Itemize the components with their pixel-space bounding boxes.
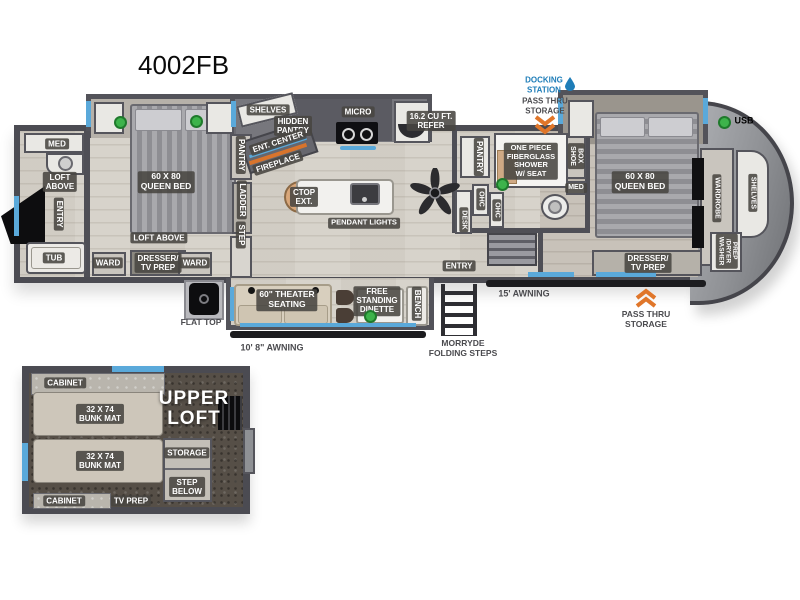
label-ladder: LADDER <box>237 180 247 219</box>
window-accent <box>528 272 574 277</box>
label-shower: ONE PIECE FIBERGLASS SHOWER W/ SEAT <box>504 143 558 180</box>
label-med-rear: MED <box>45 138 69 149</box>
label-ward-left: WARD <box>93 257 123 268</box>
label-pass-thru-top: PASS THRU STORAGE <box>522 96 568 115</box>
ceiling-fan-icon <box>410 168 460 218</box>
label-loft-storage: STORAGE <box>164 447 209 458</box>
toilet-bowl <box>548 200 562 214</box>
tv-panel <box>692 158 704 200</box>
label-front-dresser: DRESSER/ TV PREP <box>625 253 672 273</box>
label-pendant-lights: PENDANT LIGHTS <box>328 218 400 229</box>
label-entry-rear: ENTRY <box>54 198 64 231</box>
label-wardrobe: WARDROBE <box>712 174 721 222</box>
usb-legend-label: USB <box>734 116 753 127</box>
label-awning-right: 15' AWNING <box>498 289 549 300</box>
label-rear-bed: 60 X 80 QUEEN BED <box>138 171 195 193</box>
label-ohc-a: OHC <box>476 188 485 210</box>
nightstand <box>568 100 594 138</box>
water-drop-icon <box>565 77 575 91</box>
usb-dot <box>496 178 509 191</box>
label-desk: DESK <box>459 207 468 232</box>
label-tv-prep: TV PREP <box>111 495 151 506</box>
entry-door-accent <box>14 196 19 236</box>
label-docking-station: DOCKING STATION <box>525 75 563 94</box>
model-title: 4002FB <box>138 50 229 81</box>
loft-divider <box>165 468 210 470</box>
burner-icon <box>342 128 355 141</box>
awning-bar-left <box>230 331 426 338</box>
label-flat-top: FLAT TOP <box>181 317 222 327</box>
label-ohc-b: OHC <box>492 199 501 221</box>
usb-dot-legend <box>718 116 731 129</box>
wall <box>538 231 543 277</box>
label-entry-mid: ENTRY <box>443 260 476 271</box>
folding-steps-ladder <box>441 284 477 336</box>
label-awning-left: 10' 8" AWNING <box>240 343 303 354</box>
label-bath-pantry: PANTRY <box>474 138 484 176</box>
label-theater: 60" THEATER SEATING <box>256 289 317 311</box>
label-folding-steps: MORRYDE FOLDING STEPS <box>429 338 497 358</box>
dinette-chair <box>336 290 354 305</box>
label-ward-right: WARD <box>180 257 210 268</box>
label-pass-thru-bottom: PASS THRU STORAGE <box>622 309 671 329</box>
label-step-below: STEP BELOW <box>169 477 205 497</box>
floorplan-canvas: 4002FB <box>0 0 800 600</box>
label-bench: BENCH <box>412 287 422 321</box>
label-step: STEP <box>236 222 246 249</box>
label-loft-above-rear: LOFT ABOVE <box>43 172 77 192</box>
usb-dot <box>190 115 203 128</box>
burner-icon <box>360 128 373 141</box>
label-kitchen-shelves: SHELVES <box>247 104 290 115</box>
slide-accent <box>703 98 708 124</box>
label-refer: 16.2 CU FT. REFER <box>407 111 456 131</box>
label-shoe-box: SHOE BOX <box>568 143 585 169</box>
awning-bar-right <box>486 280 706 287</box>
pillow <box>648 117 693 137</box>
label-loft-cabinet-top: CABINET <box>44 377 86 388</box>
nightstand <box>206 102 234 134</box>
pillow <box>135 109 182 131</box>
label-loft-cabinet-bottom: CABINET <box>43 495 85 506</box>
slide-accent <box>240 323 416 327</box>
oven-handle <box>340 146 376 150</box>
usb-dot <box>364 310 377 323</box>
chevron-down-icon <box>533 114 557 136</box>
label-loft-above-bed: LOFT ABOVE <box>130 232 187 243</box>
loft-step-tab <box>243 428 255 474</box>
label-bunk-a: 32 X 74 BUNK MAT <box>76 404 124 424</box>
label-pantry-column: PANTRY <box>236 136 246 174</box>
slide-accent <box>231 101 236 127</box>
bath-sink <box>58 156 73 171</box>
label-bath-med: MED <box>565 183 587 193</box>
dinette-chair <box>336 308 354 323</box>
loft-window-accent <box>22 443 28 481</box>
cupholder <box>248 287 255 294</box>
chevron-up-icon <box>634 288 658 310</box>
label-washer-dryer: WASHER /DRYER PREP <box>716 234 738 269</box>
label-ctop-ext: CTOP EXT. <box>290 187 318 207</box>
pillow <box>600 117 645 137</box>
label-micro: MICRO <box>342 106 375 117</box>
label-cap-shelves: SHELVES <box>748 174 757 212</box>
label-tub: TUB <box>43 252 65 263</box>
label-dinette: FREE STANDING DINETTE <box>353 286 400 316</box>
label-dresser-left: DRESSER/ TV PREP <box>135 253 182 273</box>
slide-accent <box>230 287 234 321</box>
griddle-burner-icon <box>199 294 209 304</box>
loft-window-accent <box>112 366 164 372</box>
interior-stairs <box>487 233 537 266</box>
label-upper-loft: UPPER LOFT <box>156 388 232 430</box>
slide-accent <box>86 101 91 127</box>
usb-dot <box>114 116 127 129</box>
faucet <box>362 197 367 202</box>
tv-panel <box>692 206 704 248</box>
label-front-bed: 60 X 80 QUEEN BED <box>612 171 669 193</box>
label-bunk-b: 32 X 74 BUNK MAT <box>76 451 124 471</box>
